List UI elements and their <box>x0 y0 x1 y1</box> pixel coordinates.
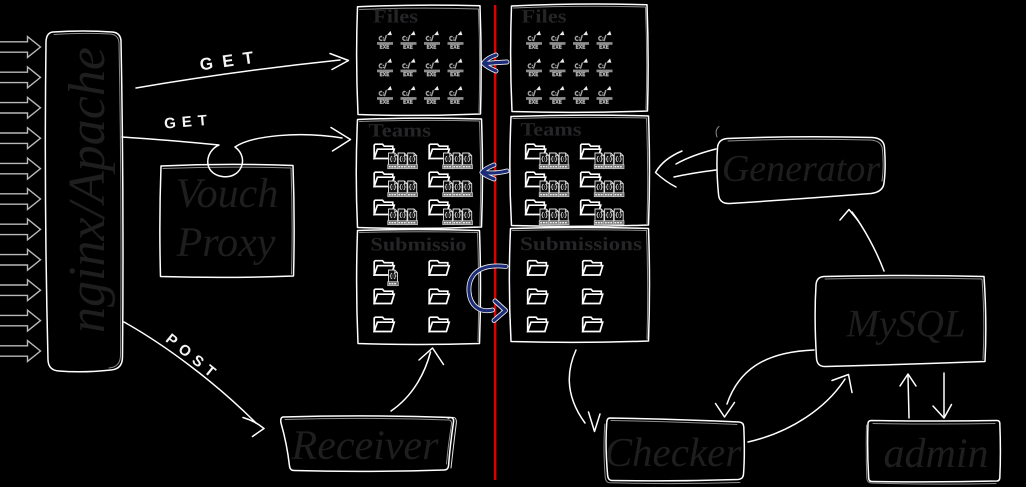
svg-text:Generator: Generator <box>722 148 881 190</box>
svg-text:Checker: Checker <box>605 429 743 475</box>
svg-text:Vouch: Vouch <box>176 171 279 217</box>
svg-text:Submissio: Submissio <box>370 235 466 256</box>
svg-text:Receiver: Receiver <box>291 423 440 469</box>
svg-text:Submissions: Submissions <box>520 234 642 255</box>
svg-text:admin: admin <box>883 431 988 477</box>
svg-text:Teams: Teams <box>520 120 581 141</box>
svg-text:MySQL: MySQL <box>845 302 965 345</box>
svg-text:Proxy: Proxy <box>176 220 276 266</box>
svg-text:Teams: Teams <box>368 121 431 142</box>
svg-text:nginx/Apache: nginx/Apache <box>59 47 116 333</box>
svg-text:Files: Files <box>521 6 566 27</box>
svg-text:Files: Files <box>373 7 418 28</box>
